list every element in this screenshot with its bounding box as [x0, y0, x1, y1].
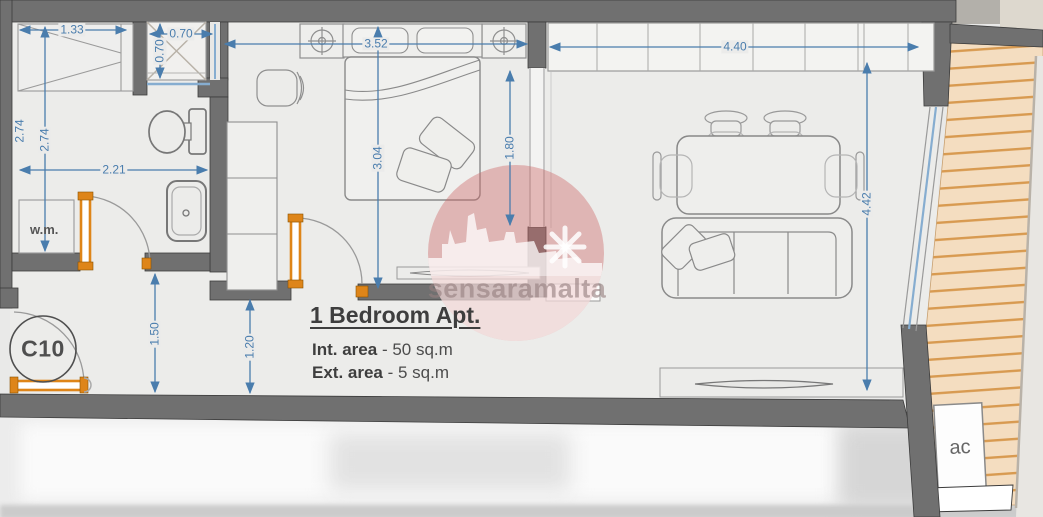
wall-stub-bottom-left	[0, 288, 18, 308]
ac-label: ac	[949, 436, 971, 460]
nightstand-left	[300, 24, 344, 58]
dim-hall-width: 1.50	[148, 320, 161, 347]
neighbour-terrace	[1000, 0, 1043, 29]
wall-top	[0, 0, 956, 22]
exterior-area-label: Ext. area	[312, 363, 383, 382]
dim-left-height: 2.74	[38, 126, 51, 153]
interior-area-label: Int. area	[312, 340, 377, 359]
interior-area-value: - 50 sq.m	[382, 340, 453, 359]
window-slot	[210, 22, 220, 80]
pillow	[417, 28, 473, 53]
floor-plan-drawing	[0, 0, 1043, 517]
dim-opening-width: 1.80	[503, 134, 516, 161]
dim-shower-depth: 0.70	[153, 37, 166, 64]
wall-left	[0, 0, 12, 308]
wash-basin	[167, 181, 206, 241]
dim-kitchen-width: 4.40	[721, 40, 748, 53]
dim-living-length: 4.42	[860, 190, 873, 217]
wall-pillar-closet	[133, 22, 147, 95]
dim-bedroom-width: 3.52	[362, 37, 389, 50]
windmill-icon	[546, 228, 584, 266]
exterior-area-line: Ext. area - 5 sq.m	[312, 363, 449, 383]
dim-left-height-partial: 2.74	[13, 117, 26, 144]
dim-bedroom-length: 3.04	[371, 144, 384, 171]
wall-bath-bottom-right	[145, 253, 210, 271]
dim-shower-width: 0.70	[167, 27, 194, 40]
bedroom-wardrobe	[227, 122, 277, 290]
apartment-title: 1 Bedroom Apt.	[310, 302, 480, 329]
unit-number: C10	[21, 336, 65, 363]
exterior-area-value: - 5 sq.m	[388, 363, 449, 382]
dim-bathroom-width: 2.21	[100, 163, 127, 176]
wall-partition-top	[528, 22, 546, 68]
sofa	[659, 218, 852, 298]
dim-hall-depth: 1.20	[243, 333, 256, 360]
washing-machine-label: w.m.	[30, 222, 58, 237]
toilet	[149, 109, 206, 154]
neighbour-area	[950, 0, 1000, 24]
wall-notch	[198, 78, 228, 97]
wall-bottom	[0, 394, 910, 428]
watermark-text: sensaramalta	[428, 274, 607, 305]
dining-table	[677, 136, 840, 214]
wall-bath-bottom-left	[12, 253, 80, 271]
nightstand-right	[482, 24, 526, 58]
wall-bath-bedroom	[210, 97, 228, 272]
dim-closet-width: 1.33	[58, 23, 85, 36]
interior-area-line: Int. area - 50 sq.m	[312, 340, 453, 360]
wall-shower-right-b	[220, 22, 228, 80]
floor-plan: 1.33 0.70 0.70 3.52 4.40 2.74 2.74 2.21 …	[0, 0, 1043, 517]
balcony	[926, 43, 1043, 517]
